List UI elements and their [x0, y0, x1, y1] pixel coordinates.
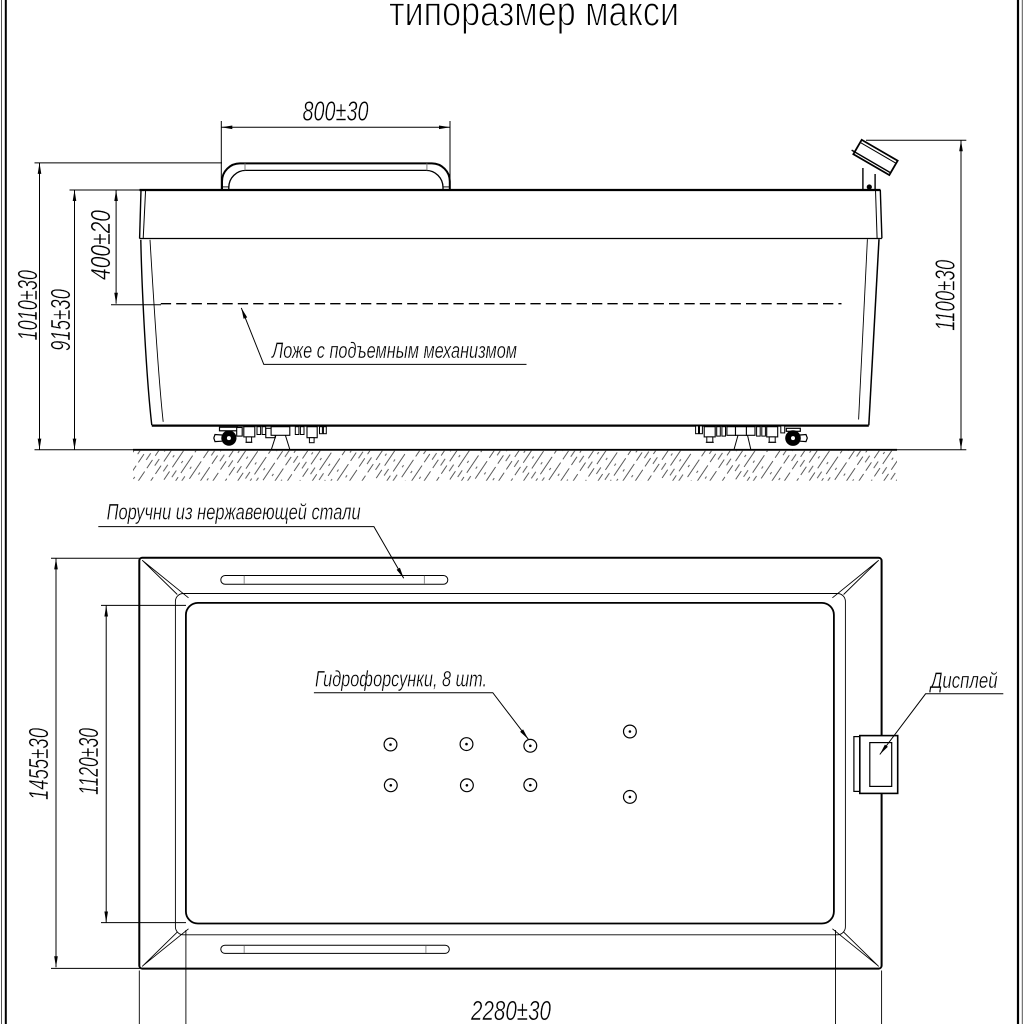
- svg-text:1100±30: 1100±30: [930, 260, 961, 331]
- svg-text:Дисплей: Дисплей: [928, 668, 997, 693]
- svg-text:1455±30: 1455±30: [23, 728, 54, 800]
- svg-text:1010±30: 1010±30: [12, 270, 43, 341]
- svg-text:типоразмер макси: типоразмер макси: [389, 0, 679, 35]
- svg-text:Ложе с подъемным механизмом: Ложе с подъемным механизмом: [271, 338, 517, 363]
- svg-text:1120±30: 1120±30: [73, 728, 104, 795]
- svg-text:915±30: 915±30: [45, 289, 76, 351]
- svg-text:2280±30: 2280±30: [470, 995, 551, 1024]
- svg-text:800±30: 800±30: [303, 96, 369, 127]
- svg-text:Поручни из нержавеющей стали: Поручни из нержавеющей стали: [107, 500, 361, 525]
- svg-text:Гидрофорсунки, 8 шт.: Гидрофорсунки, 8 шт.: [315, 667, 487, 692]
- svg-text:400±20: 400±20: [85, 210, 116, 280]
